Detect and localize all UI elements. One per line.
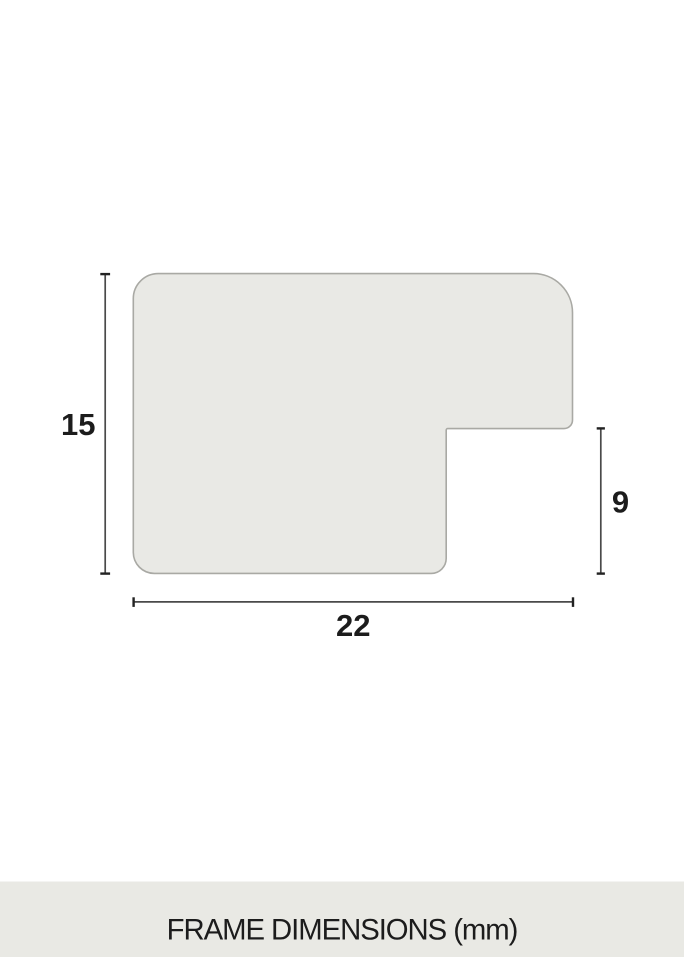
svg-text:15: 15 <box>61 407 95 442</box>
svg-text:9: 9 <box>612 484 629 519</box>
svg-text:22: 22 <box>336 608 370 643</box>
svg-text:FRAME DIMENSIONS (mm): FRAME DIMENSIONS (mm) <box>167 913 518 946</box>
